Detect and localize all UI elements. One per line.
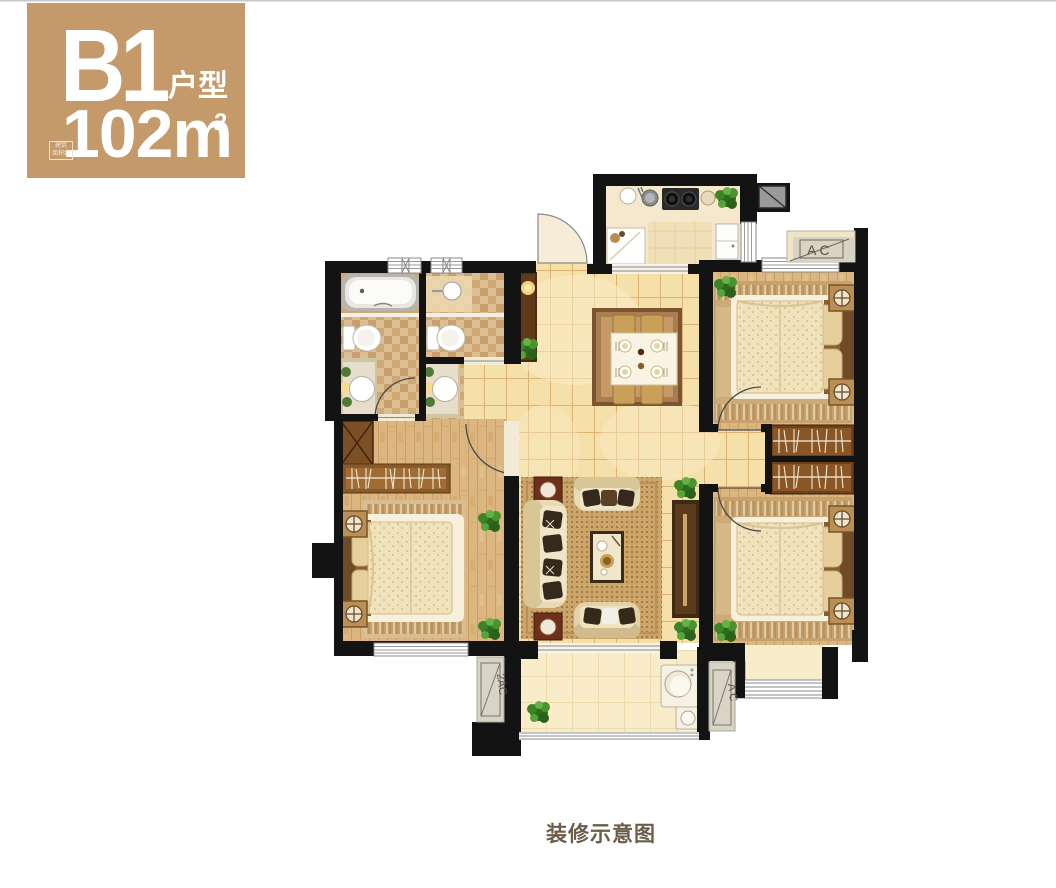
svg-text:A C: A C [725,683,739,702]
